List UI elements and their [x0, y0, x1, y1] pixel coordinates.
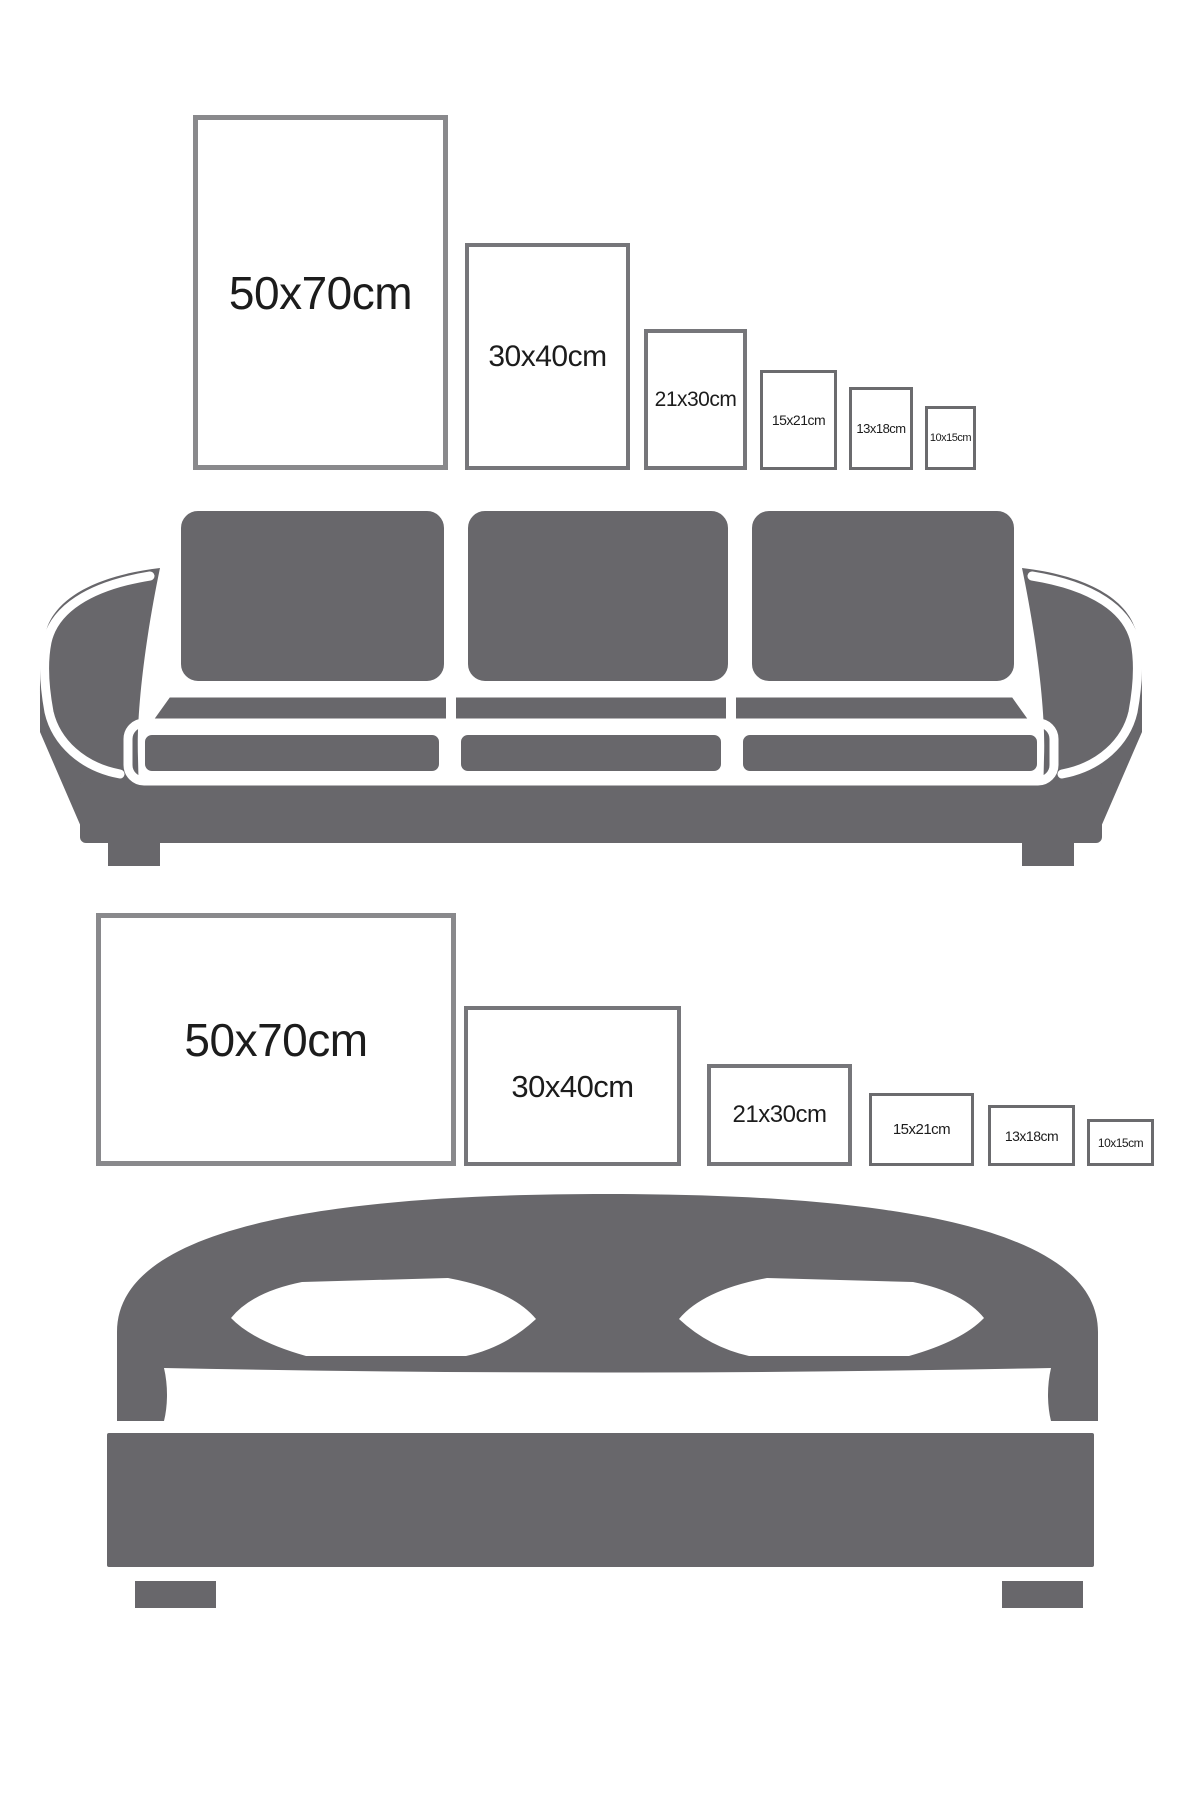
frame-15x21-portrait: 15x21cm — [760, 370, 837, 470]
bed-icon — [0, 1180, 1200, 1630]
frame-15x21-landscape: 15x21cm — [869, 1093, 974, 1166]
frame-30x40-portrait: 30x40cm — [465, 243, 630, 470]
frame-13x18-portrait: 13x18cm — [849, 387, 913, 470]
frame-size-label: 50x70cm — [184, 1017, 367, 1063]
frame-size-label: 10x15cm — [1098, 1137, 1143, 1149]
frame-size-label: 21x30cm — [733, 1103, 827, 1127]
frame-size-label: 10x15cm — [930, 433, 971, 444]
frame-13x18-landscape: 13x18cm — [988, 1105, 1075, 1166]
frame-size-label: 21x30cm — [655, 389, 737, 410]
frame-size-label: 15x21cm — [893, 1122, 950, 1137]
size-guide-infographic: 50x70cm 30x40cm 21x30cm 15x21cm 13x18cm … — [0, 0, 1200, 1800]
frame-50x70-portrait: 50x70cm — [193, 115, 448, 470]
frame-size-label: 13x18cm — [856, 422, 905, 435]
frame-10x15-landscape: 10x15cm — [1087, 1119, 1154, 1166]
frame-10x15-portrait: 10x15cm — [925, 406, 976, 470]
frame-21x30-landscape: 21x30cm — [707, 1064, 852, 1166]
frame-size-label: 30x40cm — [488, 342, 606, 372]
frame-size-label: 13x18cm — [1005, 1129, 1058, 1143]
sofa-icon — [0, 480, 1200, 880]
frame-size-label: 15x21cm — [772, 413, 825, 427]
frame-50x70-landscape: 50x70cm — [96, 913, 456, 1166]
frame-30x40-landscape: 30x40cm — [464, 1006, 681, 1166]
frame-size-label: 30x40cm — [511, 1071, 633, 1102]
frame-size-label: 50x70cm — [229, 270, 412, 316]
frame-21x30-portrait: 21x30cm — [644, 329, 747, 470]
